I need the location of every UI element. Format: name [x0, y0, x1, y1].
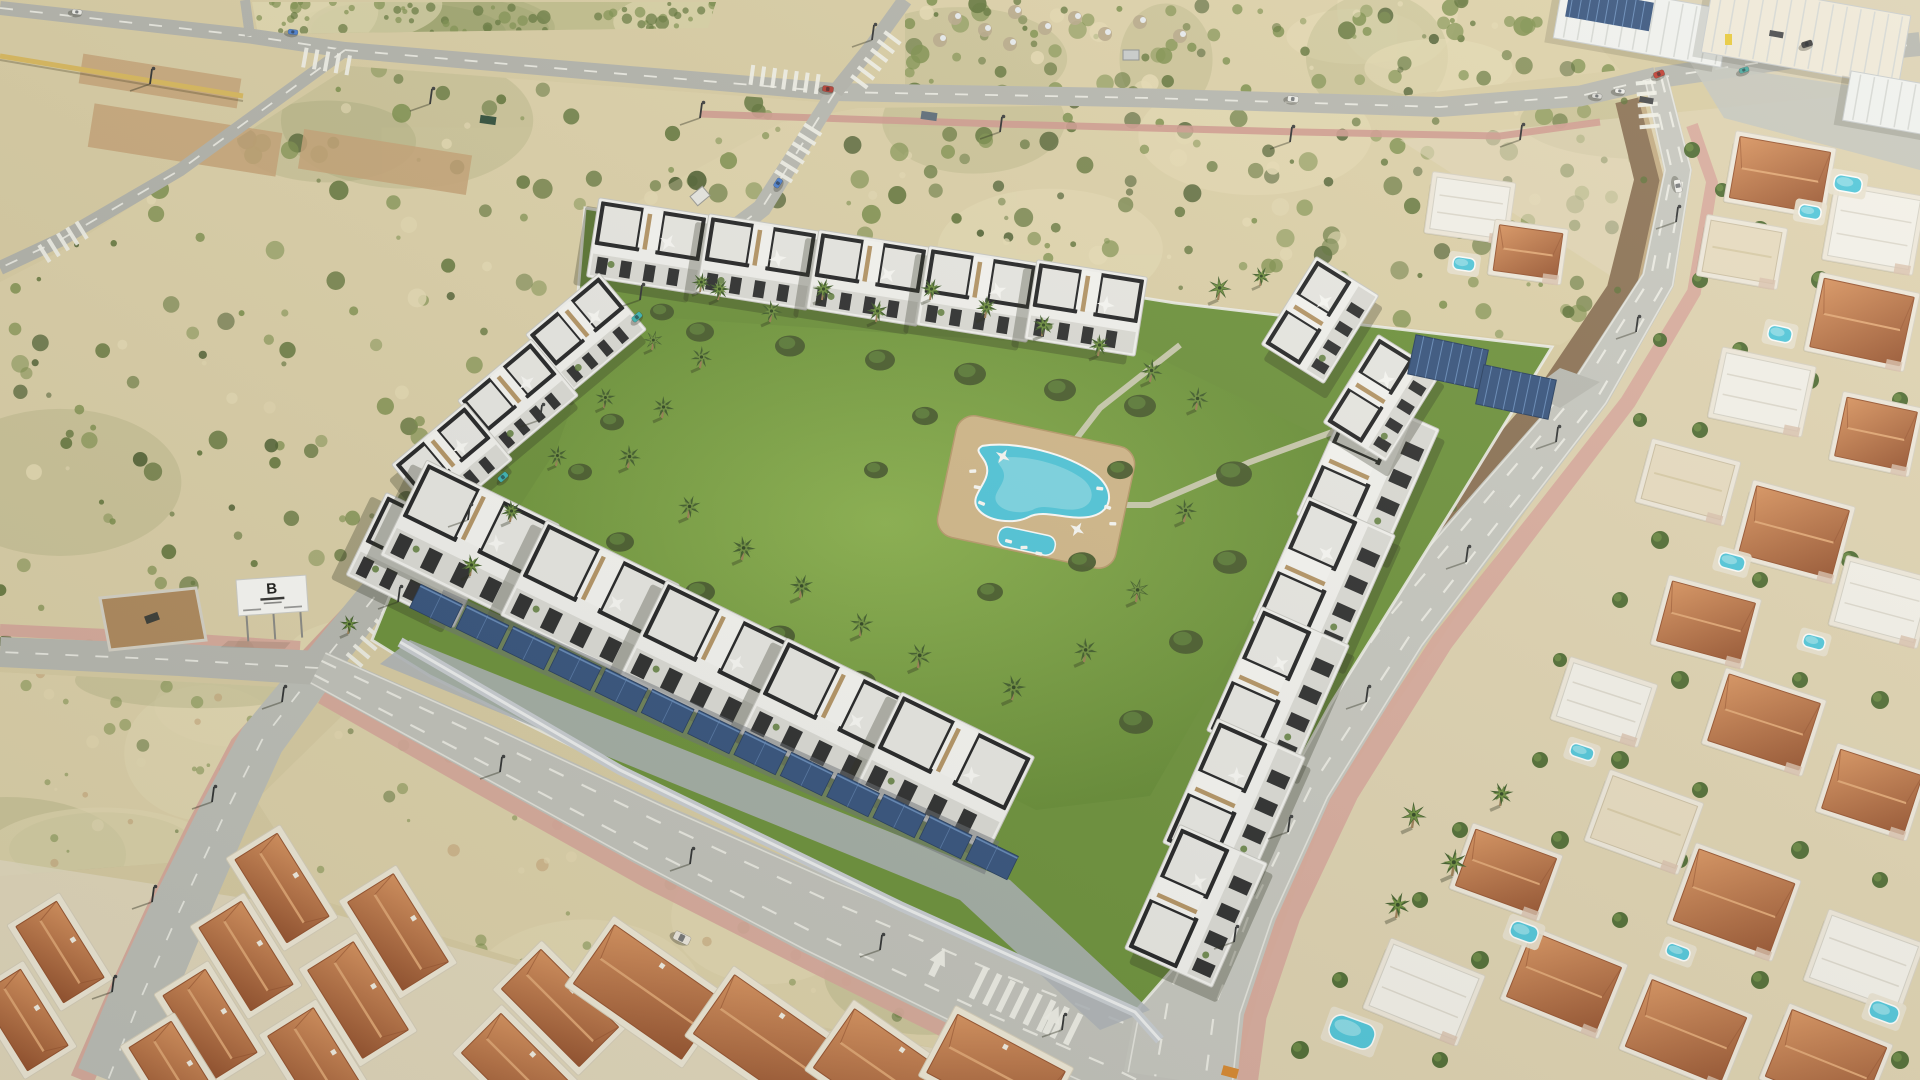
aerial-photo: B [0, 0, 1920, 1080]
aerial-scene: B [0, 0, 1920, 1080]
lighting-overlay [0, 0, 1920, 1080]
